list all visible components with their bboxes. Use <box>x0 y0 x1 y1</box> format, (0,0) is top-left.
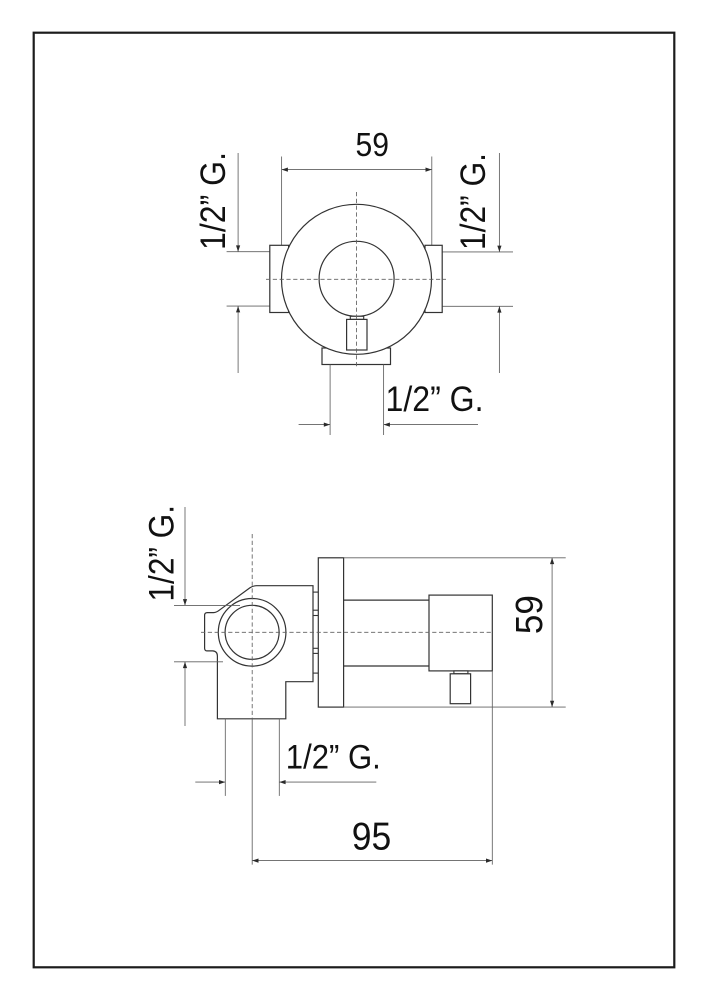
svg-text:1/2” G.: 1/2” G. <box>194 152 233 250</box>
svg-text:1/2” G.: 1/2” G. <box>143 505 182 602</box>
svg-text:1/2” G.: 1/2” G. <box>286 739 381 777</box>
svg-text:1/2” G.: 1/2” G. <box>454 153 493 250</box>
svg-text:1/2” G.: 1/2” G. <box>386 380 484 419</box>
svg-text:59: 59 <box>509 595 551 634</box>
svg-text:95: 95 <box>352 816 392 859</box>
svg-text:59: 59 <box>356 126 390 163</box>
